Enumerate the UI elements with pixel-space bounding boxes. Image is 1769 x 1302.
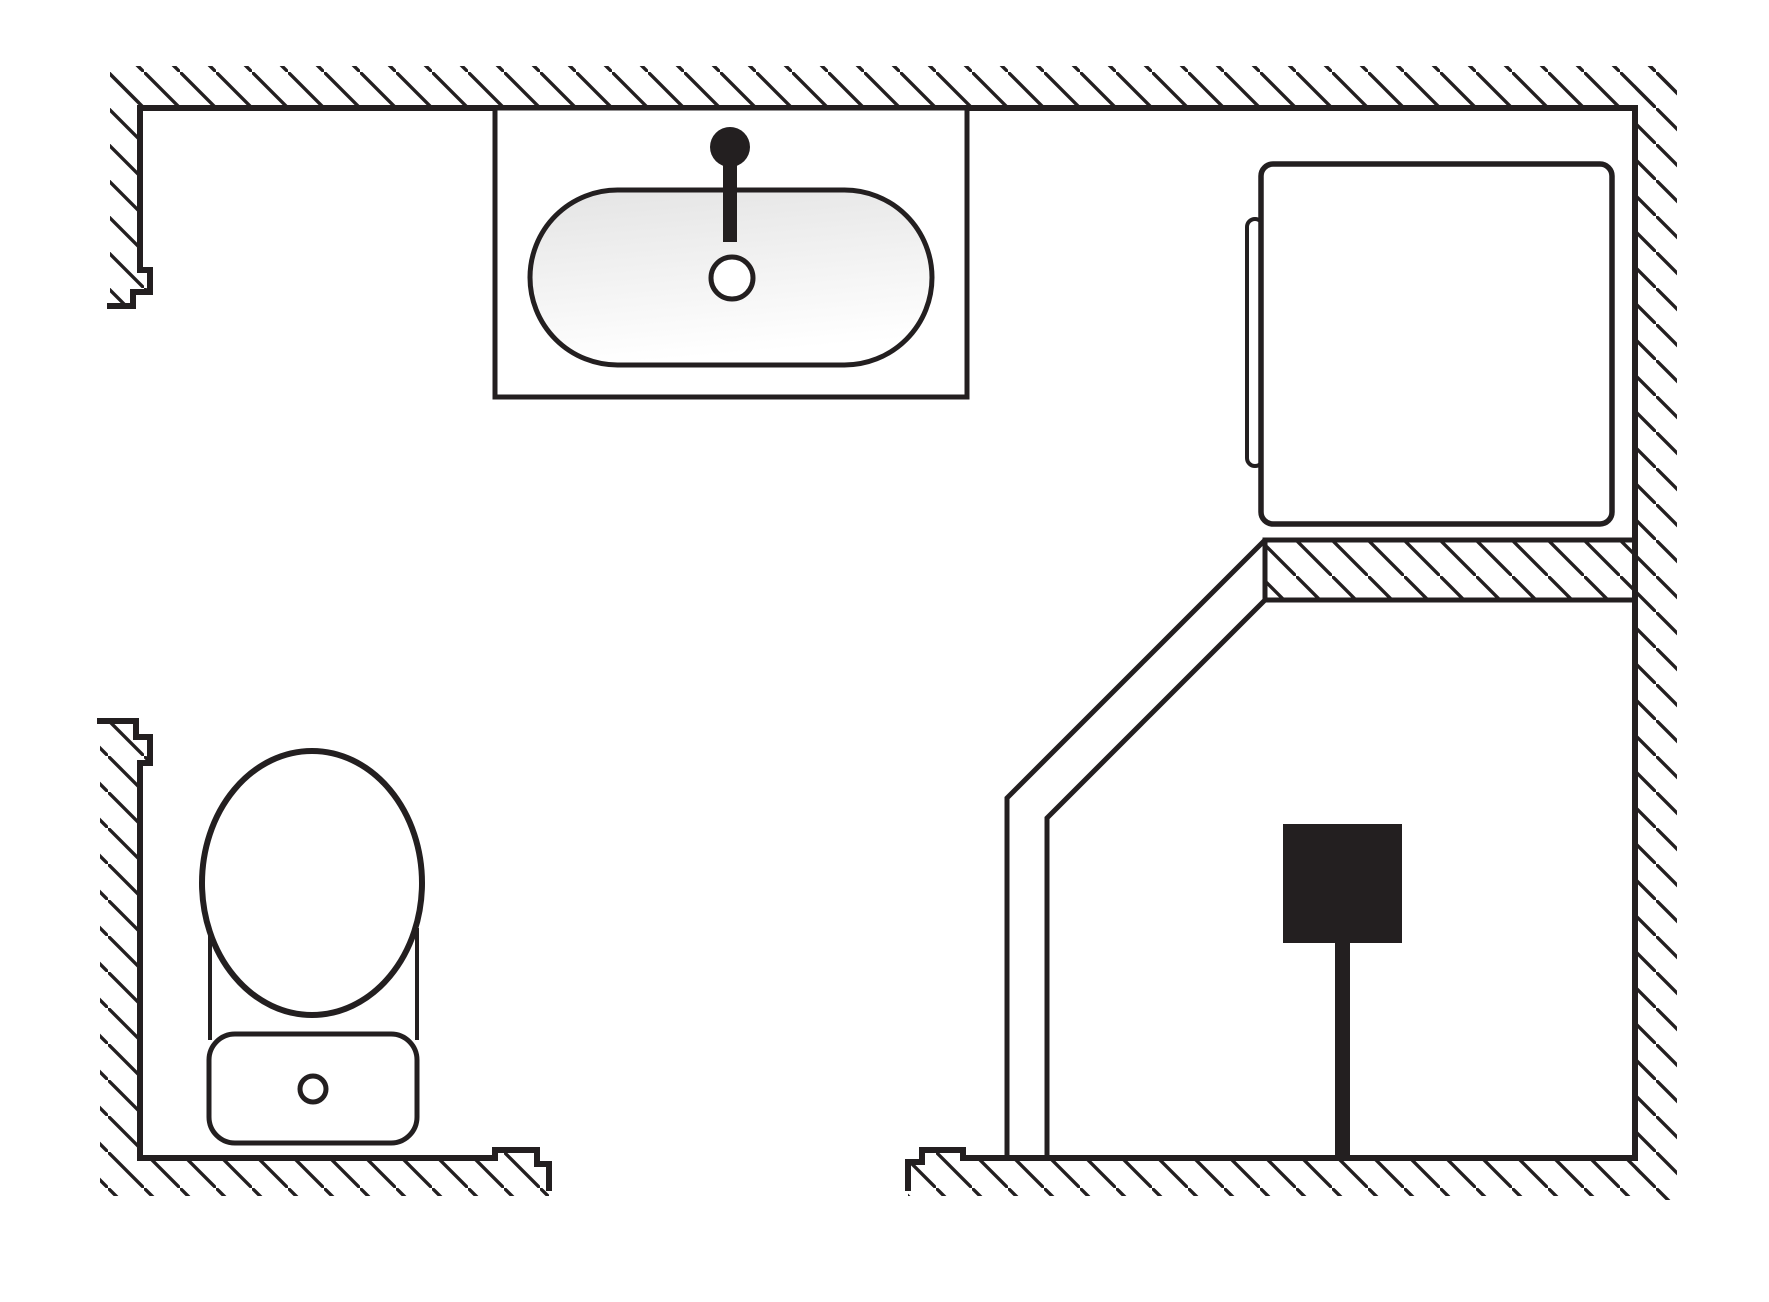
toilet-bowl [202, 751, 422, 1015]
fixtures-layer [202, 108, 1612, 1158]
toilet-flush-button [300, 1076, 326, 1102]
floor-plan [0, 0, 1769, 1302]
wall-top-hatch [110, 66, 1677, 108]
floor-plan-canvas [0, 0, 1769, 1302]
shower-glass-inner [1047, 600, 1265, 1158]
shower-arm [1335, 943, 1350, 1158]
shower-partition-wall [1265, 540, 1635, 600]
washing-machine [1261, 164, 1612, 524]
shower-head [1283, 824, 1402, 943]
wall-right-hatch [1635, 66, 1677, 1200]
faucet-knob [710, 127, 750, 167]
sink-drain [711, 257, 753, 299]
